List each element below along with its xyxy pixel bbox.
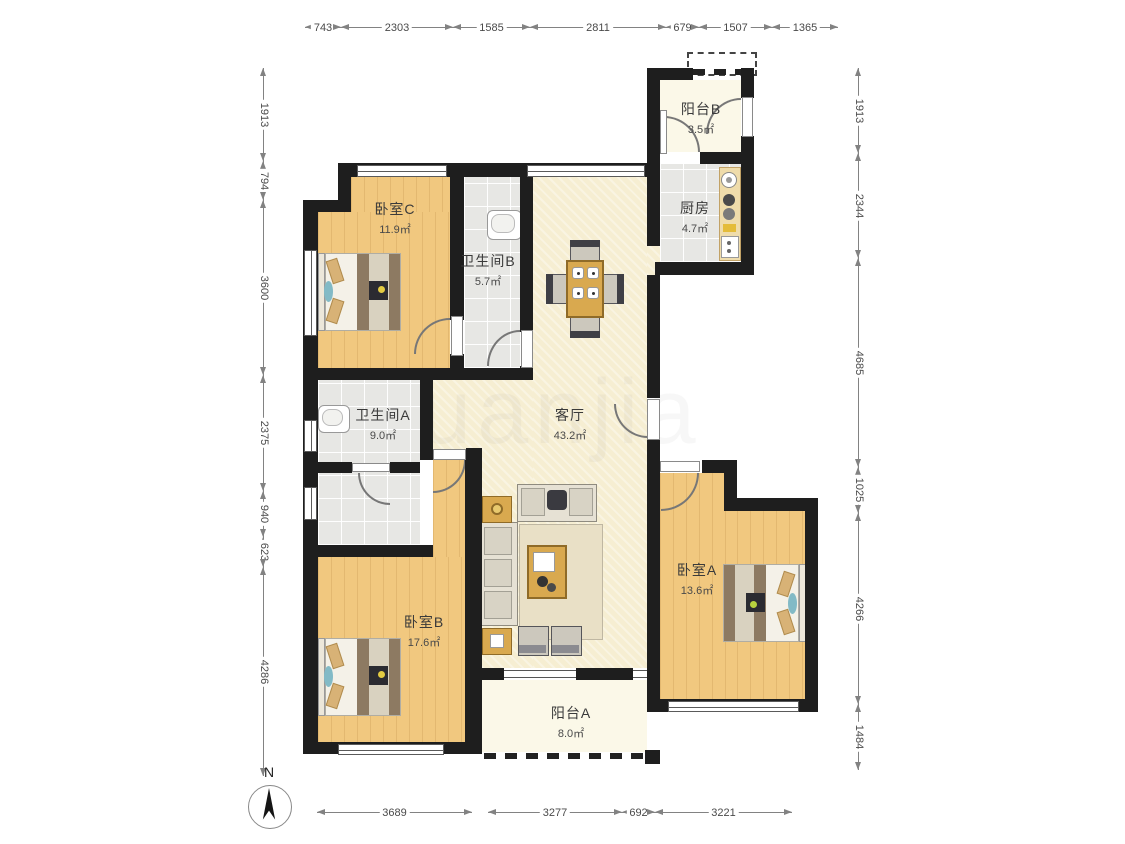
balcony-railing-dashed [693,69,741,75]
window [668,701,799,712]
dimension-segment: 3600 [263,200,264,375]
dimension-segment: 794 [263,161,264,200]
ottoman-icon [518,626,549,656]
room-label-bedroom-b: 卧室B17.6㎡ [404,612,444,650]
dimension-segment: 2303 [341,27,453,28]
north-compass: N [240,764,298,830]
room-label-bedroom-c: 卧室C11.9㎡ [374,199,415,237]
room-label-bathroom-a: 卫生间A9.0㎡ [355,405,410,443]
dimension-segment: 623 [263,537,264,567]
balcony-railing-dashed [484,753,645,759]
wall [390,462,420,473]
dimension-segment: 1365 [772,27,838,28]
sliding-door-sill [504,670,576,678]
wall [303,545,433,557]
wall [450,163,464,320]
door-leaf [352,463,390,472]
wall [647,440,660,712]
door-leaf [742,97,753,137]
dimension-segment: 743 [305,27,341,28]
door-leaf [521,330,533,368]
window [527,165,645,177]
north-label: N [240,764,298,780]
dimension-segment: 1025 [858,467,859,513]
entry-door-leaf [647,399,660,440]
dining-table-icon [546,240,624,338]
room-label-bathroom-b: 卫生间B5.7㎡ [460,251,515,289]
dimension-segment: 4685 [858,258,859,467]
dimension-segment: 940 [263,491,264,537]
floor-plan: uanjia [0,0,1125,844]
wall [420,380,433,452]
wall [805,498,818,712]
window [357,165,447,177]
wall [647,68,660,168]
wall [724,498,818,511]
dimension-segment: 679 [666,27,699,28]
room-label-living-room: 客厅43.2㎡ [554,405,586,443]
coffee-table-icon [527,545,567,599]
window [304,250,317,336]
sofa-icon [480,522,518,626]
side-table-icon [482,496,512,523]
wall [482,668,504,680]
room-label-kitchen: 厨房4.7㎡ [680,198,710,236]
sofa-icon [517,484,597,522]
dimension-segment: 1913 [263,68,264,161]
dimension-segment: 4286 [263,567,264,776]
wall [741,68,754,98]
door-leaf [660,461,700,472]
dimension-segment: 1507 [699,27,772,28]
room-label-balcony-b: 阳台B3.5㎡ [681,99,721,137]
ottoman-icon [551,626,582,656]
wall [645,750,660,764]
dimension-segment: 2375 [263,375,264,491]
wall [465,460,482,754]
kitchen-counter-icon [719,167,741,261]
wall [520,163,533,332]
dimension-segment: 3221 [655,812,792,813]
dimension-segment: 692 [622,812,655,813]
dimension-segment: 1913 [858,68,859,153]
dimension-segment: 3277 [488,812,622,813]
window [304,420,317,452]
dimension-segment: 2811 [530,27,666,28]
bed-icon [722,564,806,642]
room-label-balcony-a: 阳台A8.0㎡ [551,703,591,741]
wall [318,462,352,473]
room-label-bedroom-a: 卧室A13.6㎡ [677,560,717,598]
dimension-segment: 1585 [453,27,530,28]
wall [647,68,693,80]
sliding-door-sill [633,670,647,678]
bed-icon [318,636,404,718]
wall [700,152,754,164]
dimension-segment: 3689 [317,812,472,813]
bed-icon [318,251,404,333]
wall [318,368,533,380]
door-leaf [660,110,667,154]
bathtub-icon [487,210,522,240]
door-leaf [451,316,463,356]
dimension-segment: 4266 [858,513,859,704]
door-leaf [433,449,466,460]
wall [576,668,633,680]
bathtub-icon [318,405,350,433]
dimension-segment: 1484 [858,704,859,770]
window [338,744,444,755]
wall [655,262,754,275]
window [304,487,317,520]
wall [466,448,482,460]
wall [647,275,660,398]
dimension-segment: 2344 [858,153,859,258]
side-table-icon [482,628,512,655]
